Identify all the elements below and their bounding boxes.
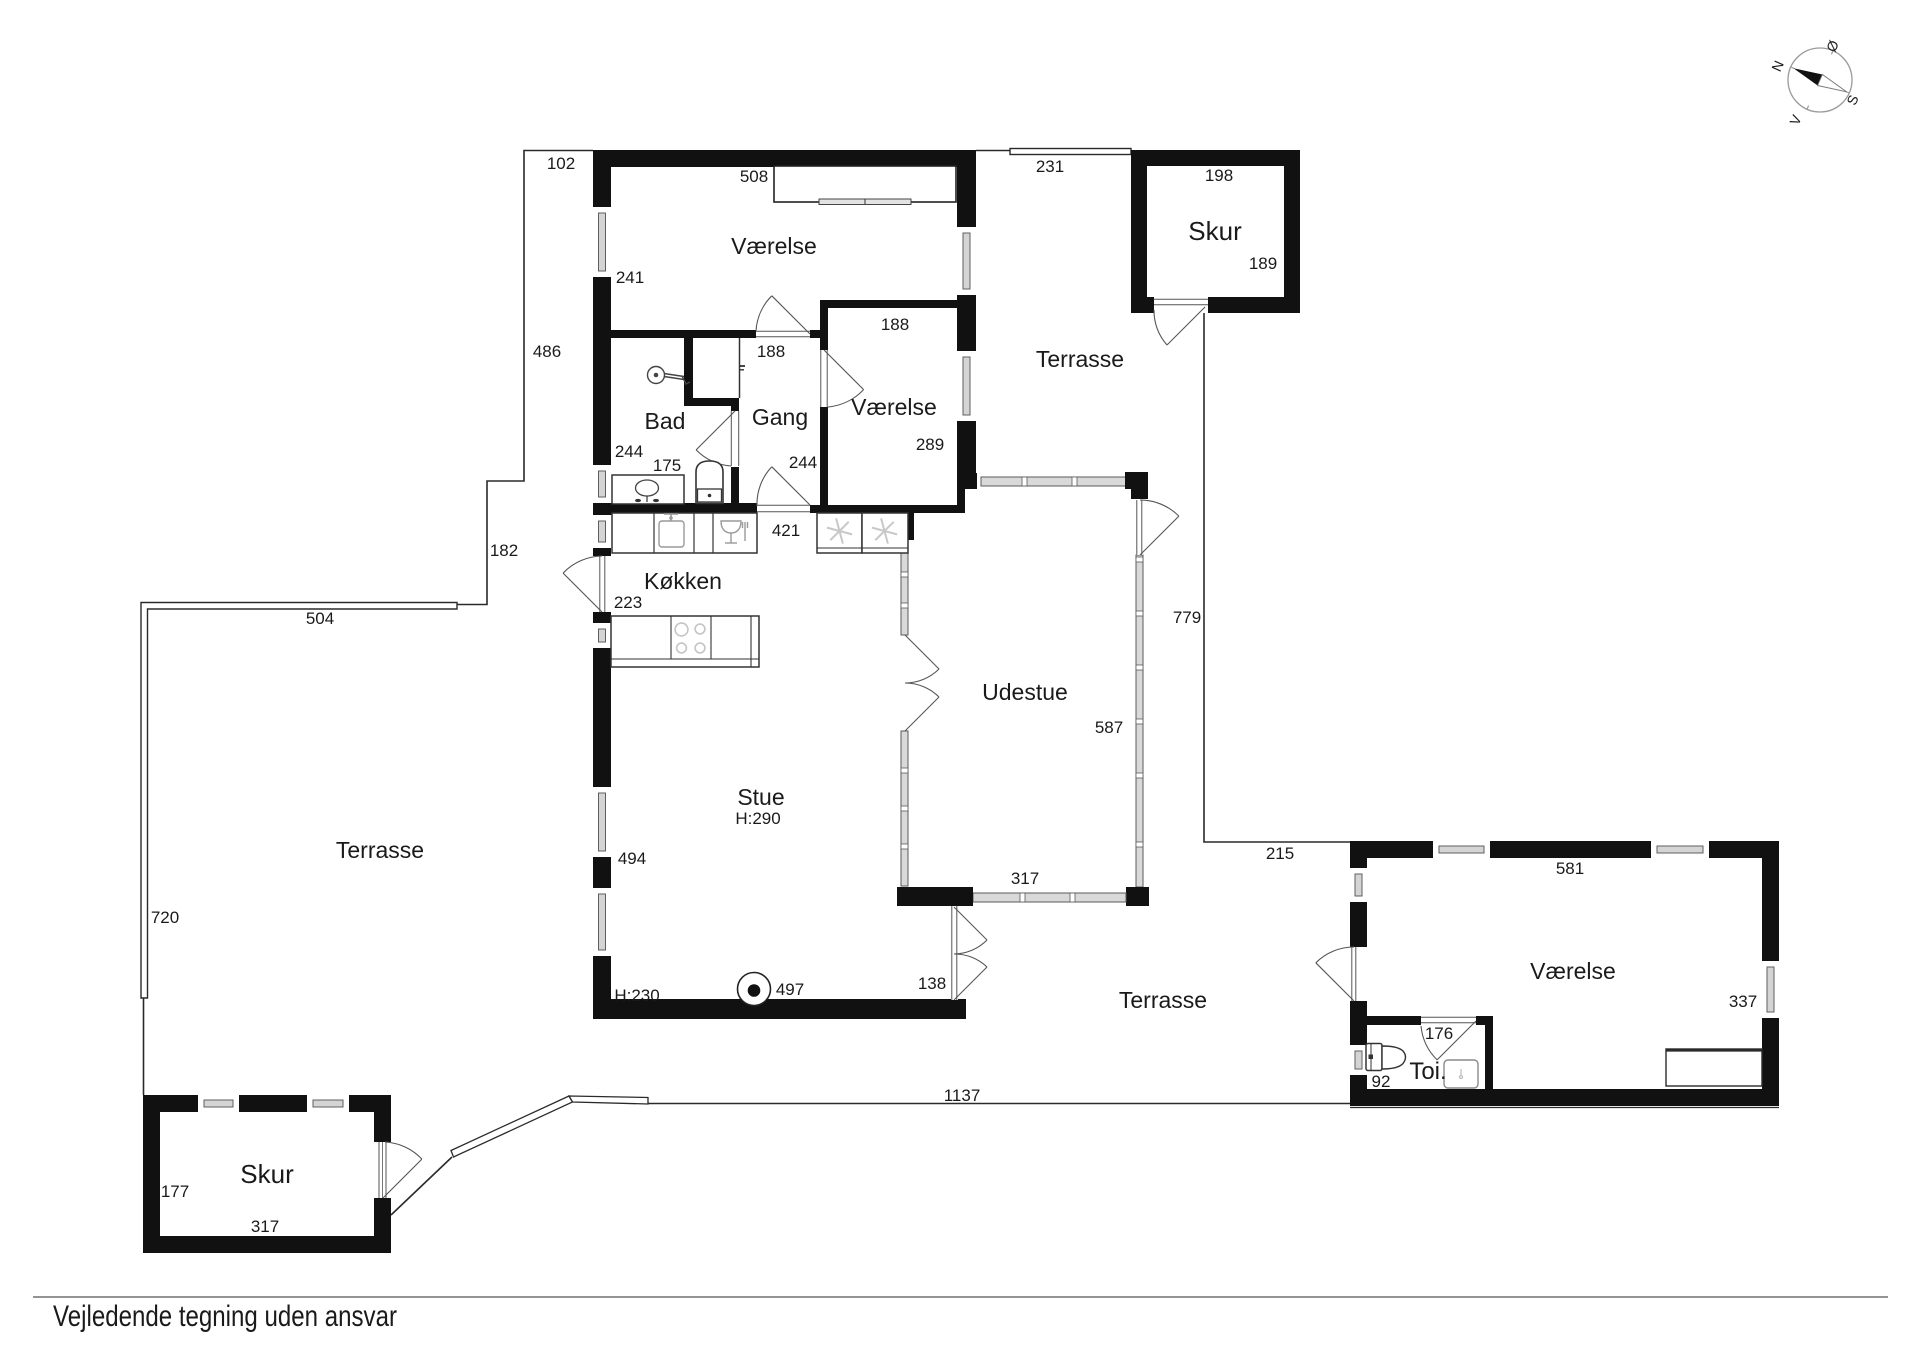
svg-text:494: 494: [618, 849, 646, 868]
svg-text:188: 188: [881, 315, 909, 334]
svg-text:Terrasse: Terrasse: [1119, 987, 1207, 1013]
svg-text:779: 779: [1173, 608, 1201, 627]
svg-text:Udestue: Udestue: [982, 679, 1068, 705]
svg-text:188: 188: [757, 342, 785, 361]
svg-text:189: 189: [1249, 254, 1277, 273]
svg-text:317: 317: [251, 1217, 279, 1236]
svg-text:Terrasse: Terrasse: [1036, 346, 1124, 372]
svg-text:215: 215: [1266, 844, 1294, 863]
svg-text:581: 581: [1556, 859, 1584, 878]
svg-text:Bad: Bad: [645, 408, 686, 434]
svg-text:Værelse: Værelse: [731, 233, 817, 259]
svg-text:317: 317: [1011, 869, 1039, 888]
svg-text:289: 289: [916, 435, 944, 454]
svg-text:1137: 1137: [944, 1086, 981, 1105]
svg-text:138: 138: [918, 974, 946, 993]
svg-text:Vejledende tegning uden ansvar: Vejledende tegning uden ansvar: [53, 1300, 397, 1333]
svg-text:198: 198: [1205, 166, 1233, 185]
svg-text:177: 177: [161, 1182, 189, 1201]
svg-text:175: 175: [653, 456, 681, 475]
svg-text:337: 337: [1729, 992, 1757, 1011]
svg-text:Gang: Gang: [752, 404, 808, 430]
svg-text:Værelse: Værelse: [851, 394, 937, 420]
svg-text:486: 486: [533, 342, 561, 361]
svg-text:Toi.: Toi.: [1409, 1058, 1446, 1085]
svg-text:Køkken: Køkken: [644, 568, 722, 594]
svg-text:102: 102: [547, 154, 575, 173]
svg-text:497: 497: [776, 980, 804, 999]
svg-text:Værelse: Værelse: [1530, 958, 1616, 984]
svg-text:508: 508: [740, 167, 768, 186]
svg-text:231: 231: [1036, 157, 1064, 176]
svg-text:H:290: H:290: [735, 809, 780, 828]
svg-text:Skur: Skur: [240, 1159, 294, 1189]
svg-text:587: 587: [1095, 718, 1123, 737]
svg-text:244: 244: [615, 442, 643, 461]
svg-text:223: 223: [614, 593, 642, 612]
svg-text:504: 504: [306, 609, 334, 628]
svg-text:Terrasse: Terrasse: [336, 837, 424, 863]
svg-text:720: 720: [151, 908, 179, 927]
svg-text:421: 421: [772, 521, 800, 540]
svg-text:176: 176: [1425, 1024, 1453, 1043]
svg-text:Stue: Stue: [737, 784, 784, 810]
svg-text:H:230: H:230: [614, 986, 659, 1005]
svg-text:182: 182: [490, 541, 518, 560]
svg-text:241: 241: [616, 268, 644, 287]
svg-text:Skur: Skur: [1188, 216, 1242, 246]
svg-text:244: 244: [789, 453, 817, 472]
svg-text:92: 92: [1372, 1072, 1391, 1091]
